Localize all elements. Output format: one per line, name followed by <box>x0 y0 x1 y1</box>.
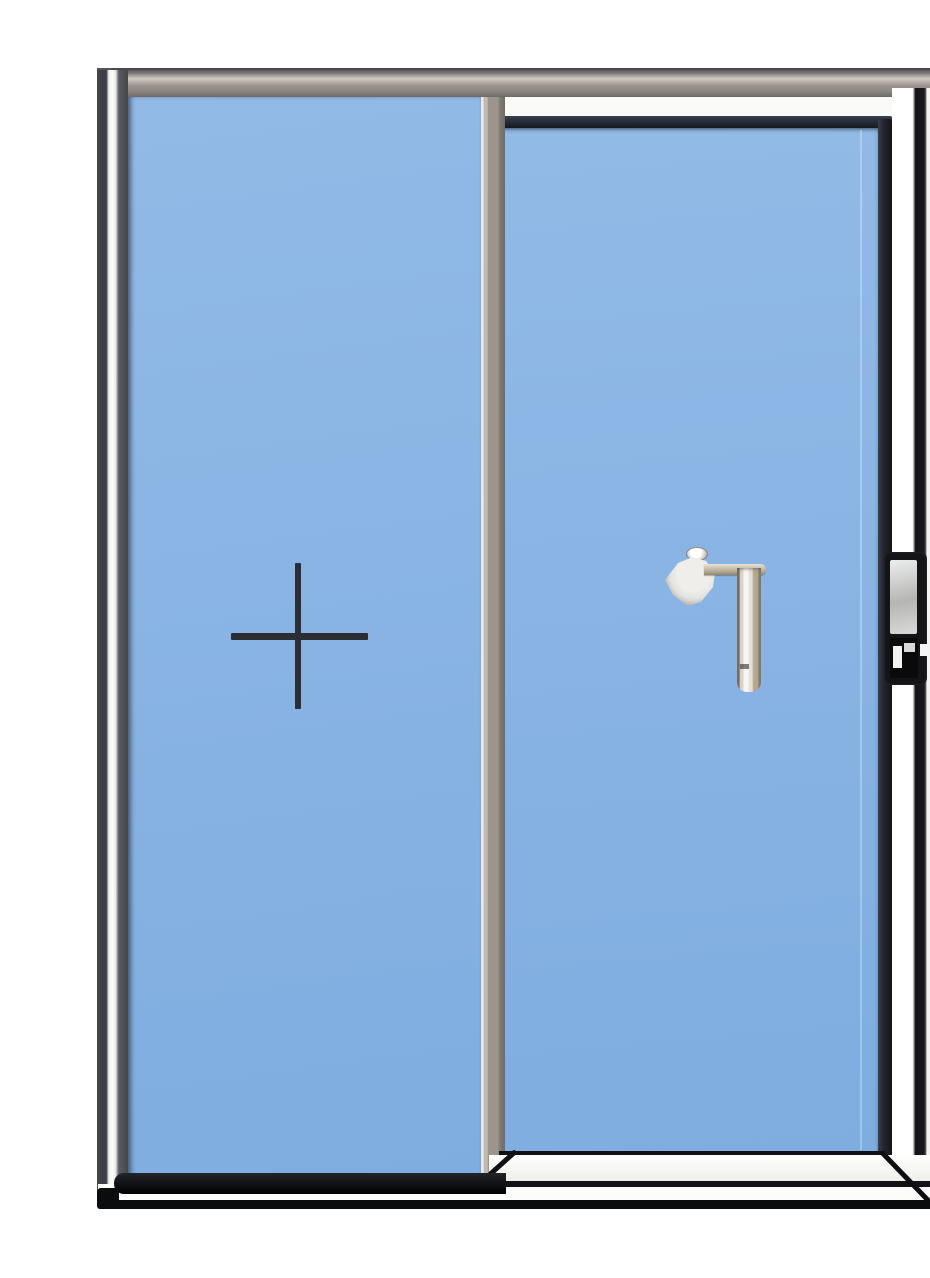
edge-lock-highlight-b <box>904 643 915 652</box>
frame-top-rail <box>97 68 930 97</box>
glazing-cross-horizontal <box>231 633 368 640</box>
sliding-door-photo <box>40 16 930 1262</box>
door-handle-bar <box>737 568 761 692</box>
edge-lock-highlight-a <box>893 646 902 668</box>
right-panel-glass <box>503 128 880 1155</box>
edge-lock-notch <box>920 644 927 656</box>
edge-lock-insert <box>890 560 917 634</box>
door-handle-bar-detail <box>740 664 749 669</box>
frame-bottom-rail <box>97 1200 930 1209</box>
right-panel-sill-top-line <box>499 1151 885 1155</box>
left-panel-bottom-rail <box>114 1173 506 1194</box>
frame-left-jamb <box>97 70 128 1206</box>
glass-reflection-line <box>860 130 862 1150</box>
right-panel-sill-underline <box>487 1181 930 1187</box>
center-stile <box>481 94 505 1181</box>
right-panel-sill <box>489 1155 930 1184</box>
